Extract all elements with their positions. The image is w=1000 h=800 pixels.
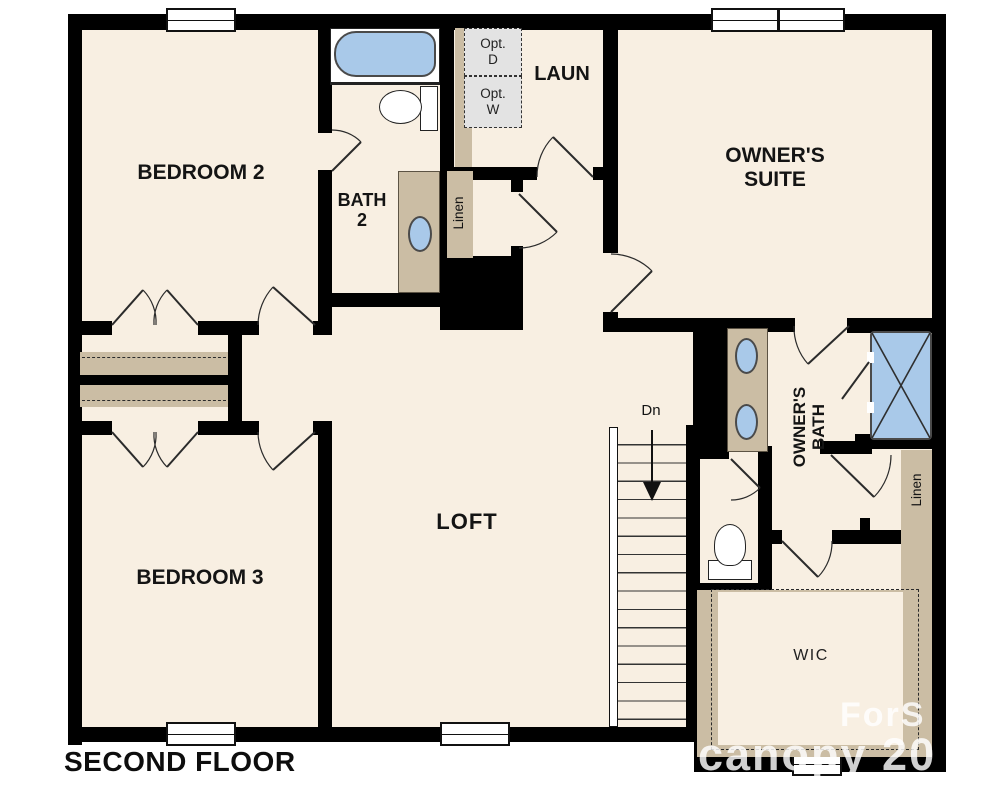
toilet-tank-bath2 <box>420 86 438 131</box>
optional-dryer-label: Opt. <box>480 36 506 52</box>
shower-owners-bath <box>870 331 932 440</box>
window-bedroom3 <box>166 722 236 746</box>
room-label-bedroom2: BEDROOM 2 <box>101 161 301 185</box>
floor-plan: Opt. D Opt. W <box>0 0 1000 800</box>
wall-segment <box>860 518 870 534</box>
closet-shelf-bedroom2 <box>80 352 228 375</box>
label-linen-owners: Linen <box>902 460 932 520</box>
wall-outer-bottom <box>68 727 708 742</box>
wall-outer-right <box>932 14 946 772</box>
sink-bath2 <box>408 216 432 252</box>
optional-dryer-letter: D <box>488 52 498 68</box>
label-stairs-down: Dn <box>621 403 681 420</box>
window-loft <box>440 722 510 746</box>
wall-closet-middle <box>82 375 228 385</box>
watermark-canopy: canopy 20 <box>698 729 936 781</box>
floor-title: SECOND FLOOR <box>64 746 296 778</box>
room-label-owners-suite-line2: SUITE <box>675 168 875 192</box>
room-label-owners-suite-line1: OWNER'S <box>675 144 875 168</box>
wall-wc-east <box>758 446 772 595</box>
wall-segment <box>68 321 112 335</box>
wall-closet-right <box>228 321 242 435</box>
shower-jamb <box>867 402 874 413</box>
wall-chase <box>440 256 523 330</box>
window-owners-suite-1 <box>711 8 779 32</box>
wall-bath2-west-lower <box>318 170 332 335</box>
room-label-laundry: LAUN <box>512 63 612 85</box>
closet-shelf-bedroom3 <box>80 385 228 407</box>
staircase <box>618 427 686 727</box>
room-label-bath2-line1: BATH <box>331 190 393 210</box>
shower-jamb <box>867 352 874 363</box>
wall-segment <box>772 530 782 544</box>
optional-washer-letter: W <box>487 102 500 118</box>
closet-rod-dashed <box>82 400 226 401</box>
wic-shelving-east <box>901 530 932 590</box>
bathtub-icon <box>334 31 436 77</box>
wall-segment <box>511 169 523 192</box>
wall-wc-north <box>700 446 729 459</box>
room-label-bedroom3: BEDROOM 3 <box>100 566 300 590</box>
room-label-wic: WIC <box>761 647 861 665</box>
wall-bath2-south <box>330 293 455 307</box>
wall-owners-suite-west <box>603 28 618 253</box>
room-label-owners-bath-line2: BATH <box>809 387 828 468</box>
window-owners-suite-2 <box>778 8 845 32</box>
window-bedroom2 <box>166 8 236 32</box>
room-label-owners-bath-lines: OWNER'S BATH <box>790 387 828 468</box>
sink-owners-2 <box>735 404 758 440</box>
label-linen-hall: Linen <box>444 183 474 243</box>
room-label-bath2: BATH 2 <box>331 190 393 230</box>
closet-rod-dashed <box>82 357 226 358</box>
room-label-owners-bath: OWNER'S BATH <box>779 367 839 487</box>
wall-segment <box>68 421 112 435</box>
room-label-loft: LOFT <box>397 510 537 535</box>
toilet-bowl-wc <box>714 524 746 566</box>
wall-outer-left <box>68 14 82 745</box>
optional-washer-label: Opt. <box>480 86 506 102</box>
stair-rail <box>609 427 618 727</box>
toilet-bowl-bath2 <box>379 90 422 124</box>
room-label-bath2-line2: 2 <box>331 210 393 230</box>
sink-owners-1 <box>735 338 758 374</box>
wall-bedroom3-loft <box>318 421 332 727</box>
room-label-owners-bath-line1: OWNER'S <box>790 387 809 468</box>
wall-segment <box>511 246 523 258</box>
room-label-owners-suite: OWNER'S SUITE <box>675 144 875 191</box>
